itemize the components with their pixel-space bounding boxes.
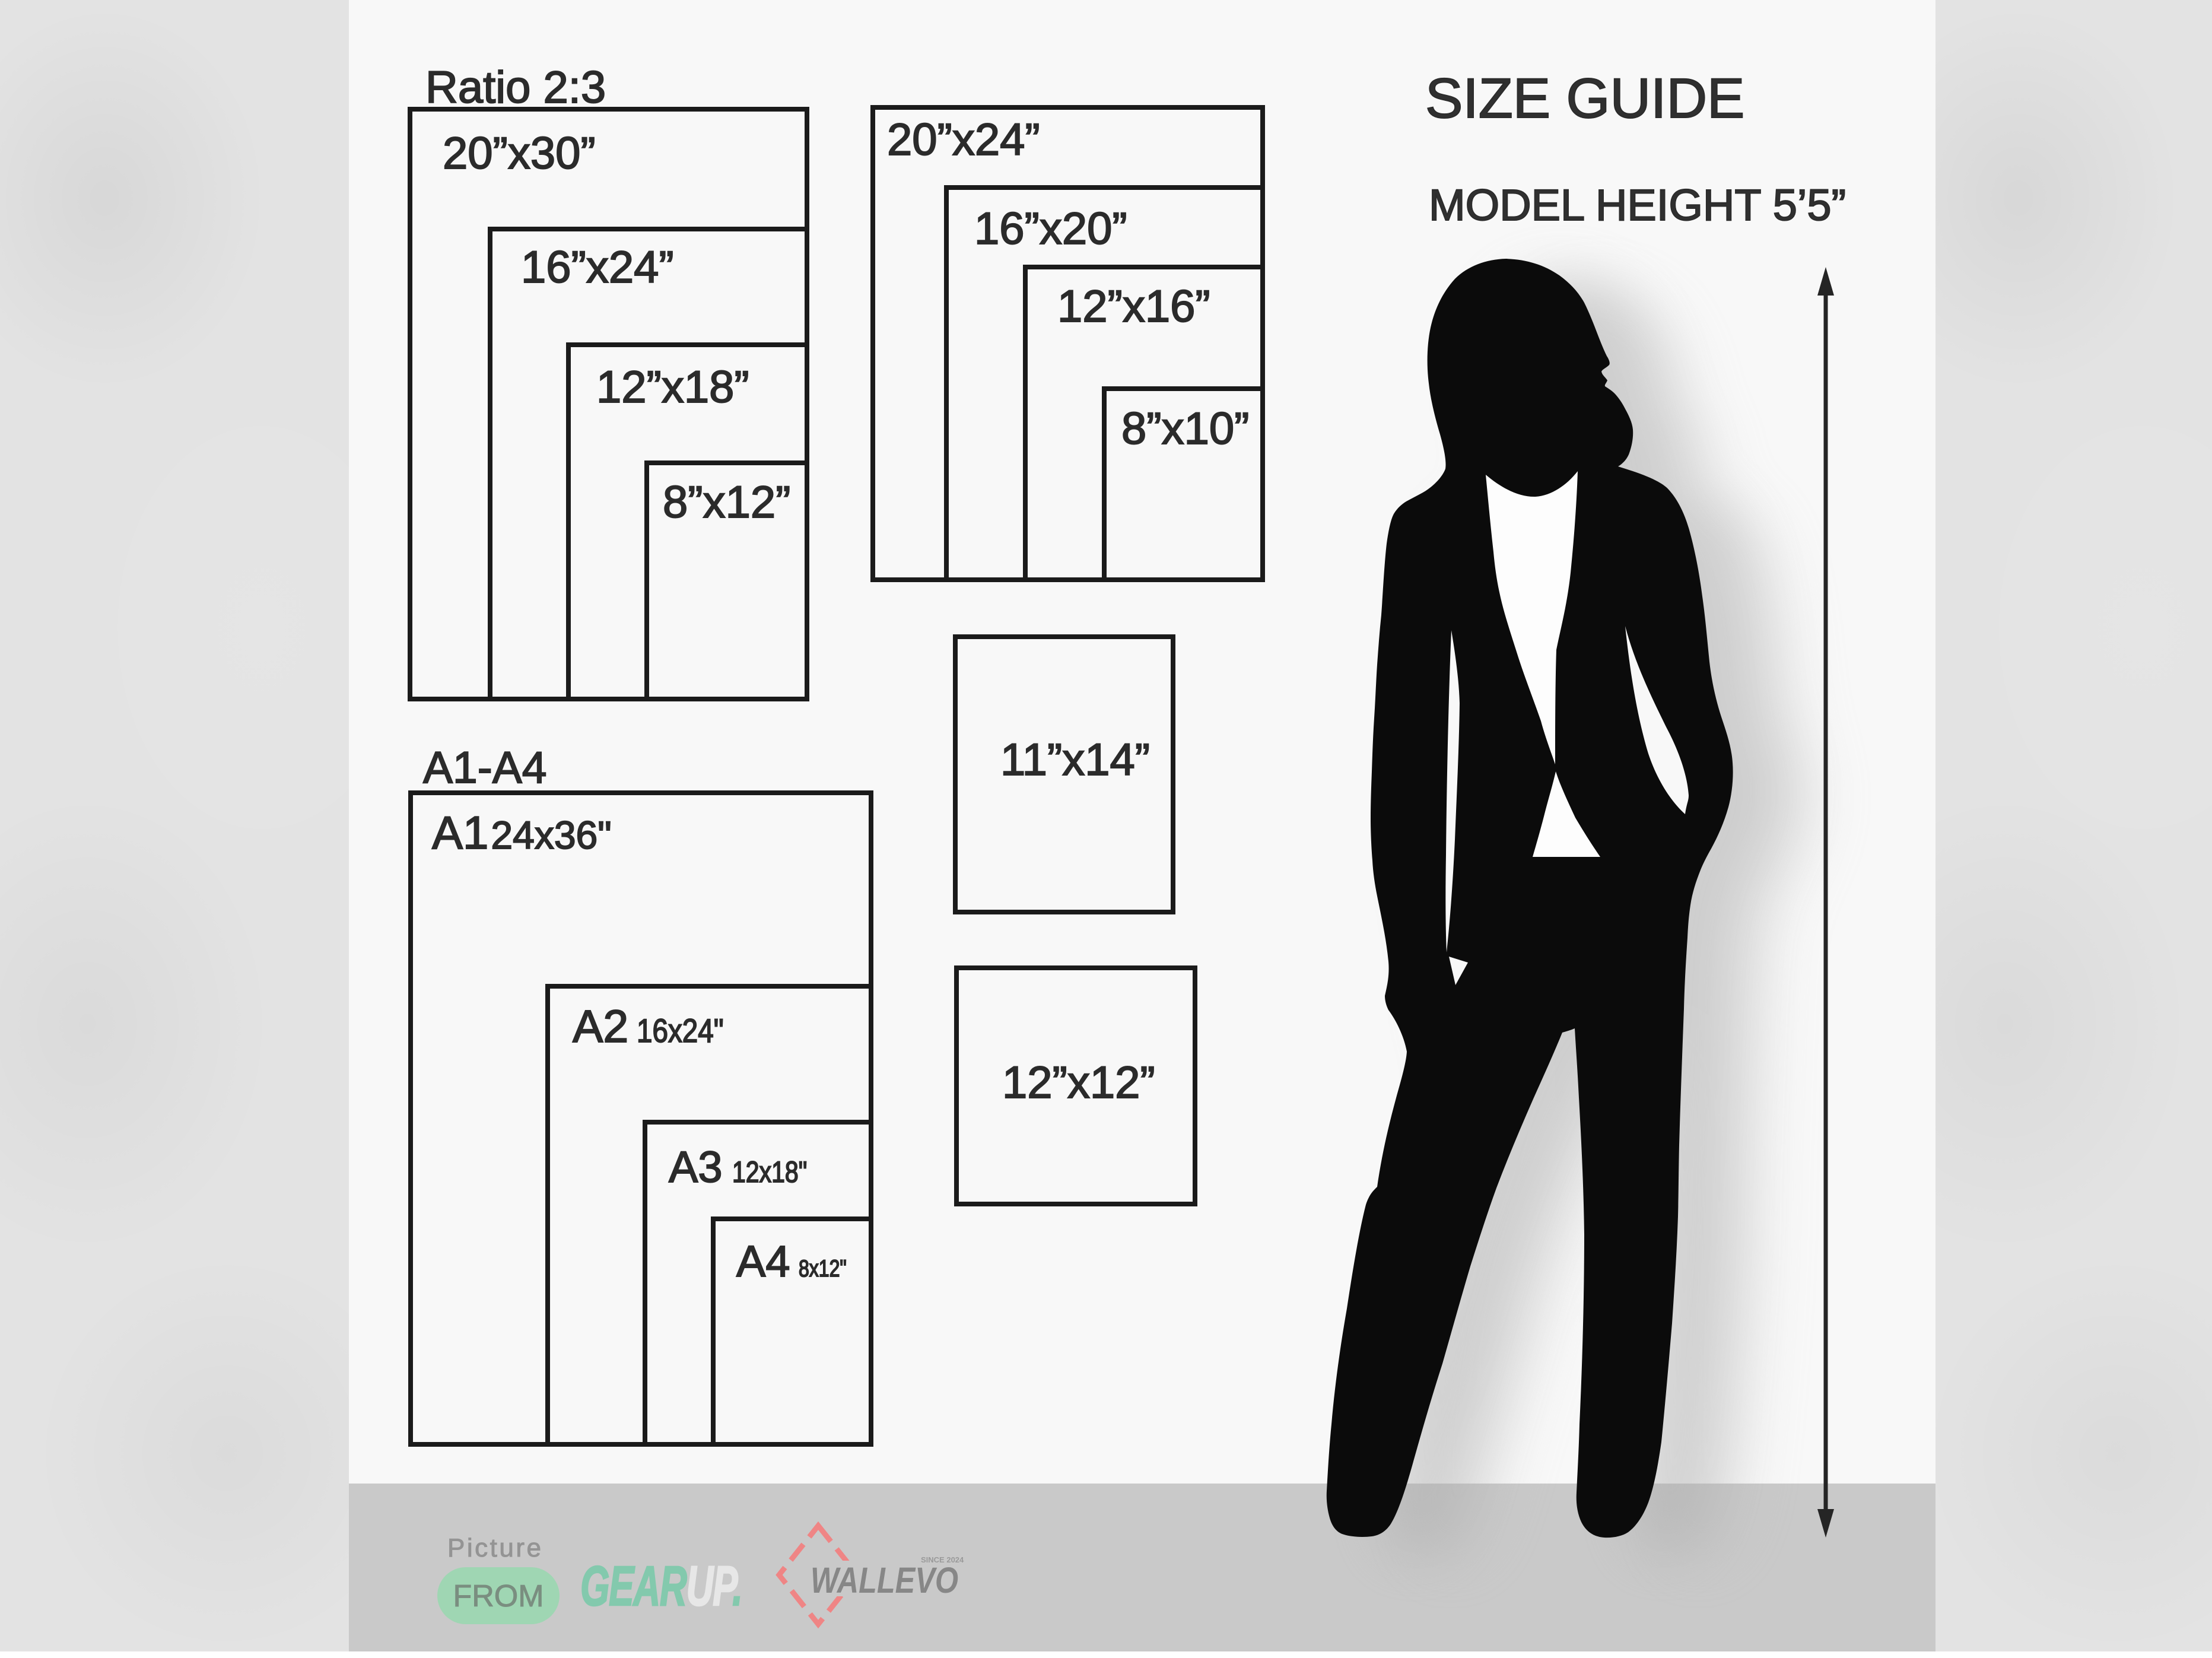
svg-text:SINCE 2024: SINCE 2024	[921, 1555, 964, 1564]
svg-text:WALLEVO: WALLEVO	[811, 1560, 958, 1600]
